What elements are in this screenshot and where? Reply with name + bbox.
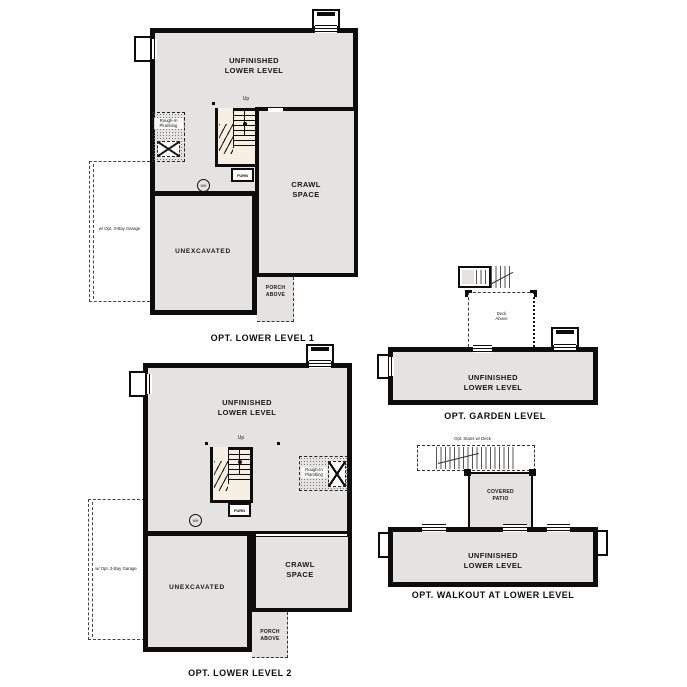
window-glyph xyxy=(151,39,157,59)
porch-above-label: PORCH ABOVE xyxy=(252,629,288,642)
window-glyph xyxy=(422,524,446,532)
furnace-box: FURN xyxy=(228,503,251,517)
post-dot xyxy=(277,442,280,445)
deck-corner xyxy=(530,290,537,297)
crawl-space-label: CRAWL SPACE xyxy=(270,560,330,580)
post-dot xyxy=(212,102,215,105)
rough-in-label: Rough-In Plumbing xyxy=(301,467,327,478)
window-glyph xyxy=(315,25,337,33)
rough-in-plumbing-area: Rough-In Plumbing xyxy=(299,456,348,491)
unfinished-lower-level-label: UNFINISHED LOWER LEVEL xyxy=(433,551,553,571)
furnace-box: FURN xyxy=(231,168,254,182)
water-heater: WH xyxy=(197,179,210,192)
garage-note: w/ Opt. 3-Bay Garage xyxy=(92,226,147,231)
stairwell xyxy=(210,447,253,503)
crawl-space-label: CRAWL SPACE xyxy=(276,180,336,200)
window-glyph xyxy=(388,357,394,376)
tub-rough-in-symbol xyxy=(328,461,346,487)
plan-caption: OPT. GARDEN LEVEL xyxy=(390,411,600,421)
window-well xyxy=(134,36,152,62)
wall-slit xyxy=(256,534,347,536)
patio-post xyxy=(464,469,471,476)
unfinished-lower-level-label: UNFINISHED LOWER LEVEL xyxy=(194,56,314,76)
up-label: Up xyxy=(237,96,255,102)
unfinished-lower-level-label: UNFINISHED LOWER LEVEL xyxy=(187,398,307,418)
stairwell xyxy=(215,108,258,167)
window-glyph xyxy=(503,524,527,532)
opt-garage-outline xyxy=(89,161,150,302)
window-well xyxy=(596,530,608,556)
plan-caption: OPT. WALKOUT AT LOWER LEVEL xyxy=(378,590,608,600)
tub-rough-in-symbol xyxy=(157,141,180,157)
deck-corner xyxy=(465,290,472,297)
window-glyph xyxy=(309,360,331,368)
covered-patio-label: COVERED PATIO xyxy=(470,489,531,502)
deck-above-label: Deck Above xyxy=(471,311,532,322)
unexcavated-label: UNEXCAVATED xyxy=(157,584,237,593)
up-label: Up xyxy=(232,435,250,441)
landing-pad xyxy=(462,270,474,284)
plan-caption: OPT. LOWER LEVEL 2 xyxy=(140,668,340,678)
stair-winders xyxy=(214,461,228,491)
rough-in-plumbing-area: Rough-In Plumbing xyxy=(152,112,185,162)
stair-winders xyxy=(219,124,233,154)
deck-stair-treads xyxy=(436,447,514,469)
porch-above-label: PORCH ABOVE xyxy=(257,285,294,298)
door-lines xyxy=(476,270,487,284)
door-opening xyxy=(268,108,283,112)
unfinished-lower-level-label: UNFINISHED LOWER LEVEL xyxy=(433,373,553,393)
floorplan-sheet: w/ Opt. 3-Bay Garage PORCH ABOVE Rough-I… xyxy=(0,0,687,687)
window-glyph xyxy=(146,374,152,394)
deck-stair-landing xyxy=(458,266,491,288)
rough-in-label: Rough-In Plumbing xyxy=(154,118,183,129)
window-glyph xyxy=(547,524,570,532)
patio-post xyxy=(529,469,536,476)
arrow-dot xyxy=(243,122,247,126)
post-dot xyxy=(205,442,208,445)
arrow-dot xyxy=(238,460,242,464)
window-well xyxy=(378,532,390,558)
window-glyph xyxy=(473,345,492,353)
water-heater: WH xyxy=(189,514,202,527)
window-glyph xyxy=(554,344,576,351)
porch-above-area xyxy=(257,277,294,322)
garage-note: w/ Opt. 3-Bay Garage xyxy=(90,566,142,571)
opt-stairs-deck-label: Opt. Stairs w/ Deck xyxy=(430,436,515,441)
plan-caption: OPT. LOWER LEVEL 1 xyxy=(155,333,370,343)
opt-deck-area xyxy=(417,445,535,471)
unexcavated-label: UNEXCAVATED xyxy=(163,248,243,257)
window-well xyxy=(129,371,147,397)
